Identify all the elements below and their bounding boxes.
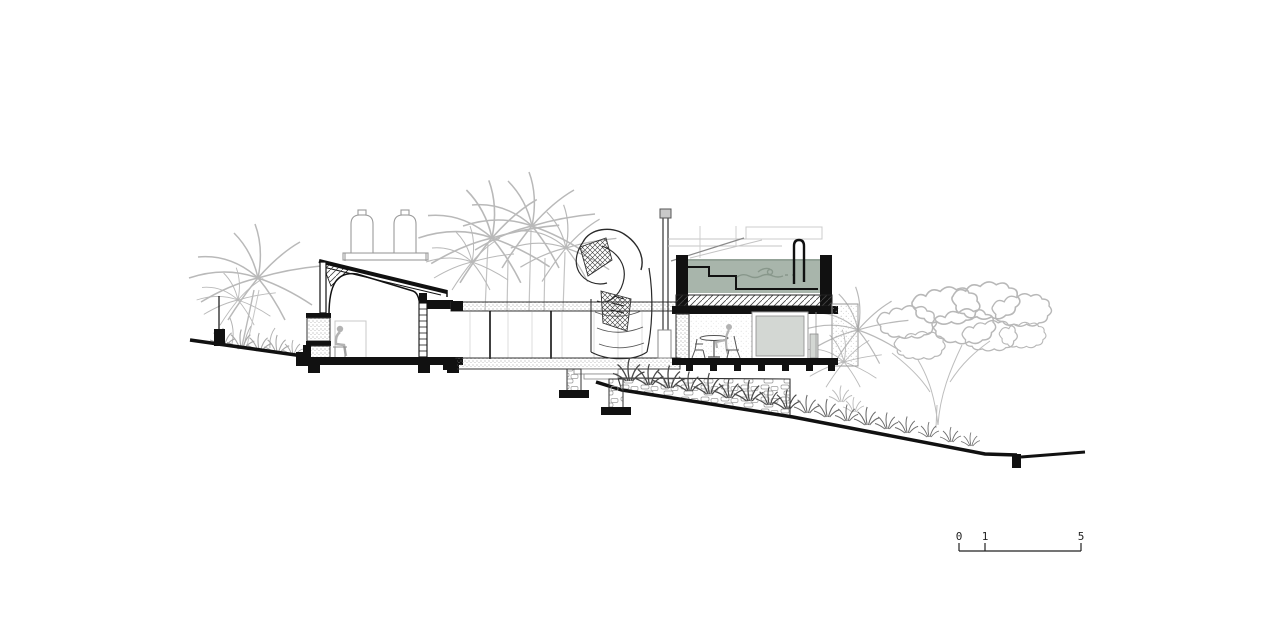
- spiral-staircase: [576, 229, 652, 358]
- right-tree: [877, 282, 1051, 428]
- right-wall: [419, 293, 453, 357]
- foreground-grass: [613, 359, 980, 447]
- floor-slab: [303, 357, 463, 365]
- rooftop-pool: [672, 240, 838, 314]
- corridor-roof-slab: [451, 302, 677, 311]
- floor-joists: [686, 365, 835, 371]
- scale-label-1: 1: [982, 530, 989, 543]
- scale-bar: 0 1 5: [956, 530, 1085, 551]
- corridor-columns: [490, 311, 551, 359]
- pool-background-railing: [668, 226, 822, 261]
- water-tank: [394, 210, 416, 253]
- pool-slab-hatch: [676, 295, 832, 306]
- section-drawing-page: 0 1 5: [0, 0, 1280, 640]
- glazed-corridor: [443, 301, 680, 415]
- left-pavilion: [296, 210, 463, 373]
- wall-panel: [752, 312, 818, 360]
- right-side-wall: [832, 304, 858, 366]
- water-tanks: [343, 210, 428, 261]
- chimney: [658, 209, 671, 358]
- scale-label-0: 0: [956, 530, 963, 543]
- scale-label-5: 5: [1078, 530, 1085, 543]
- left-palm-tree: [189, 224, 321, 355]
- room-floor-slab: [672, 358, 838, 365]
- section-drawing: 0 1 5: [0, 0, 1280, 640]
- footings: [308, 365, 459, 373]
- middle-palm-trees: [418, 172, 616, 311]
- pool-house-room: [672, 304, 858, 371]
- vaulted-ceiling: [329, 274, 420, 315]
- water-tank: [351, 210, 373, 253]
- left-wall: [320, 262, 326, 313]
- corridor-floor-slab: [456, 358, 680, 369]
